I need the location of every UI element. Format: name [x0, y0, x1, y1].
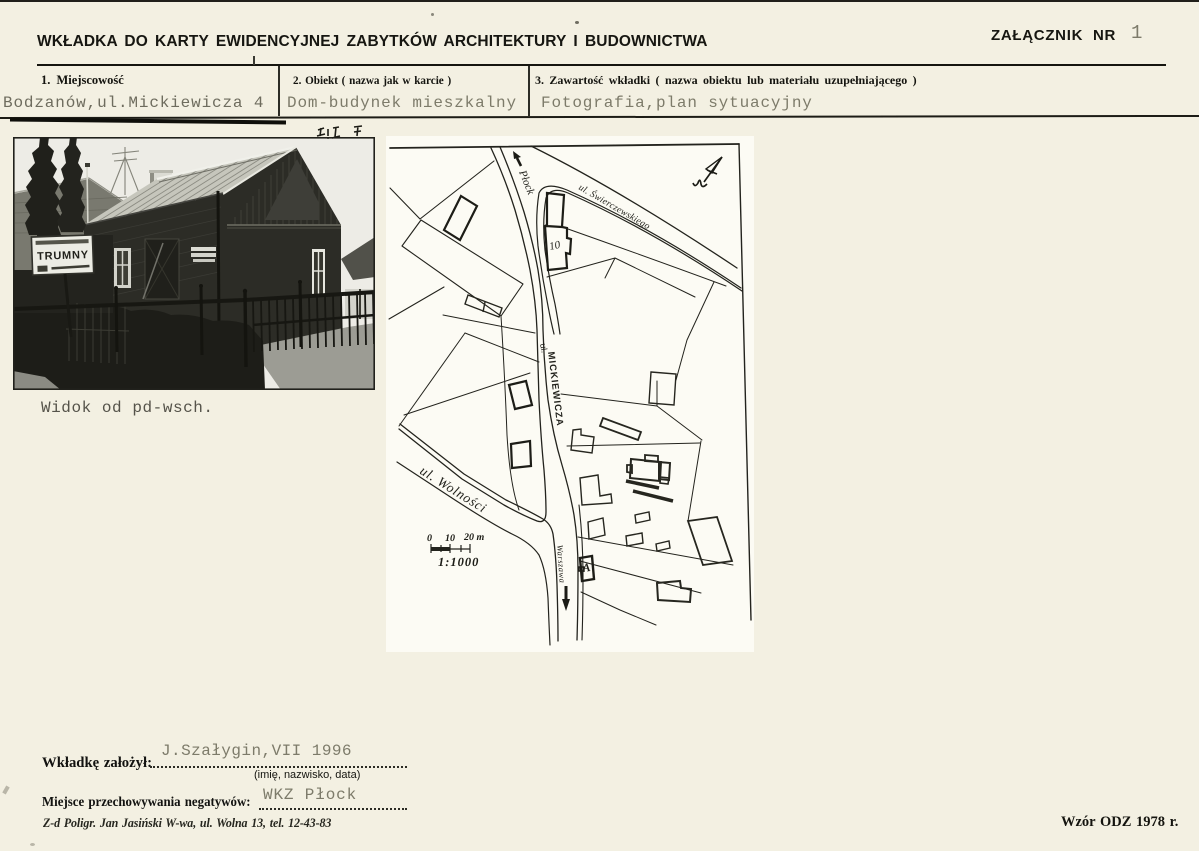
svg-text:0: 0: [427, 533, 432, 544]
svg-text:1:1000: 1:1000: [438, 555, 479, 569]
svg-text:10: 10: [445, 533, 455, 544]
svg-text:TRUMNY: TRUMNY: [37, 249, 89, 263]
svg-text:20 m: 20 m: [463, 532, 485, 543]
